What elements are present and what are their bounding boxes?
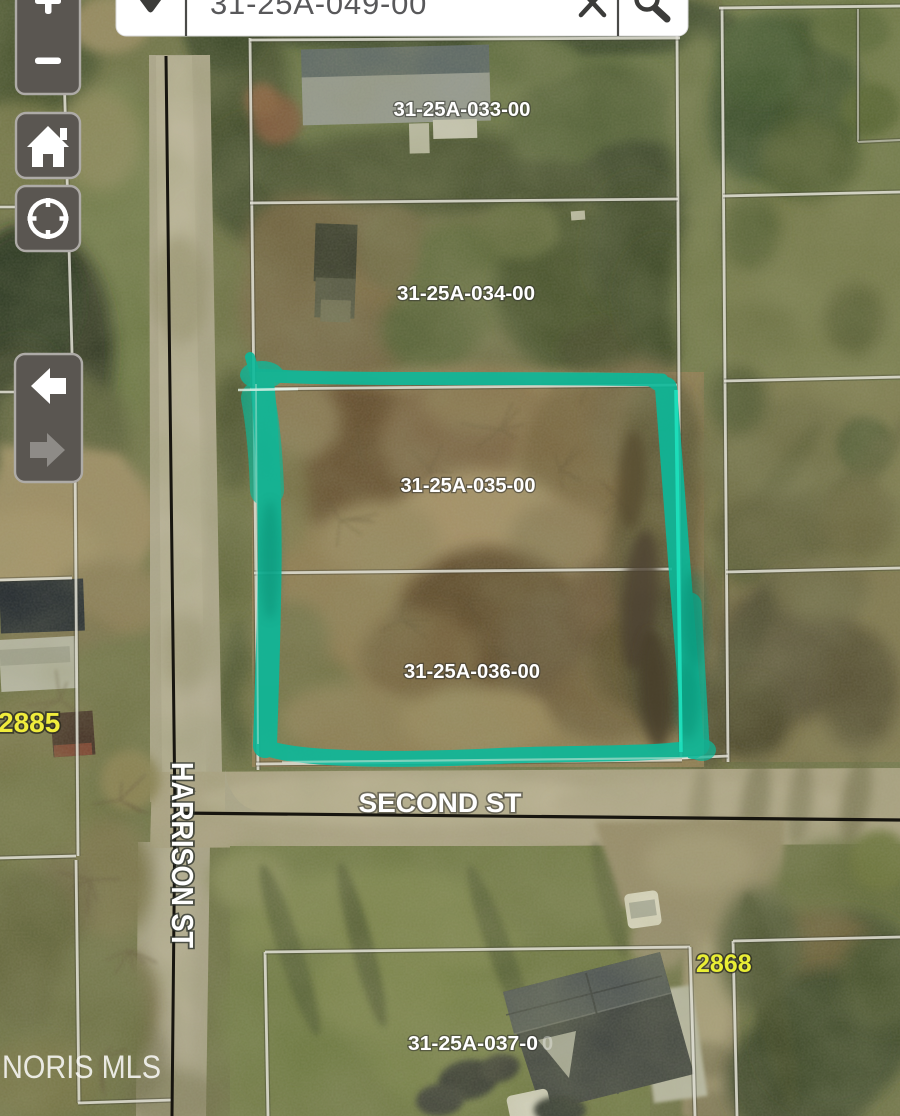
svg-text:HARRISON ST: HARRISON ST	[165, 762, 200, 948]
svg-text:NORIS MLS: NORIS MLS	[2, 1049, 161, 1085]
svg-text:2885: 2885	[0, 707, 60, 738]
svg-text:31-25A-034-00: 31-25A-034-00	[397, 283, 535, 305]
svg-text:31-25A-036-00: 31-25A-036-00	[404, 660, 540, 683]
svg-text:2868: 2868	[696, 950, 752, 978]
svg-text:31-25A-035-00: 31-25A-035-00	[401, 474, 536, 497]
svg-text:31-25A-049-00: 31-25A-049-00	[210, 0, 427, 21]
svg-text:31-25A-033-00: 31-25A-033-00	[394, 99, 531, 121]
svg-text:SECOND ST: SECOND ST	[359, 788, 523, 818]
svg-text:31-25A-037-0: 31-25A-037-0	[408, 1032, 538, 1055]
svg-text:0: 0	[542, 1033, 553, 1055]
